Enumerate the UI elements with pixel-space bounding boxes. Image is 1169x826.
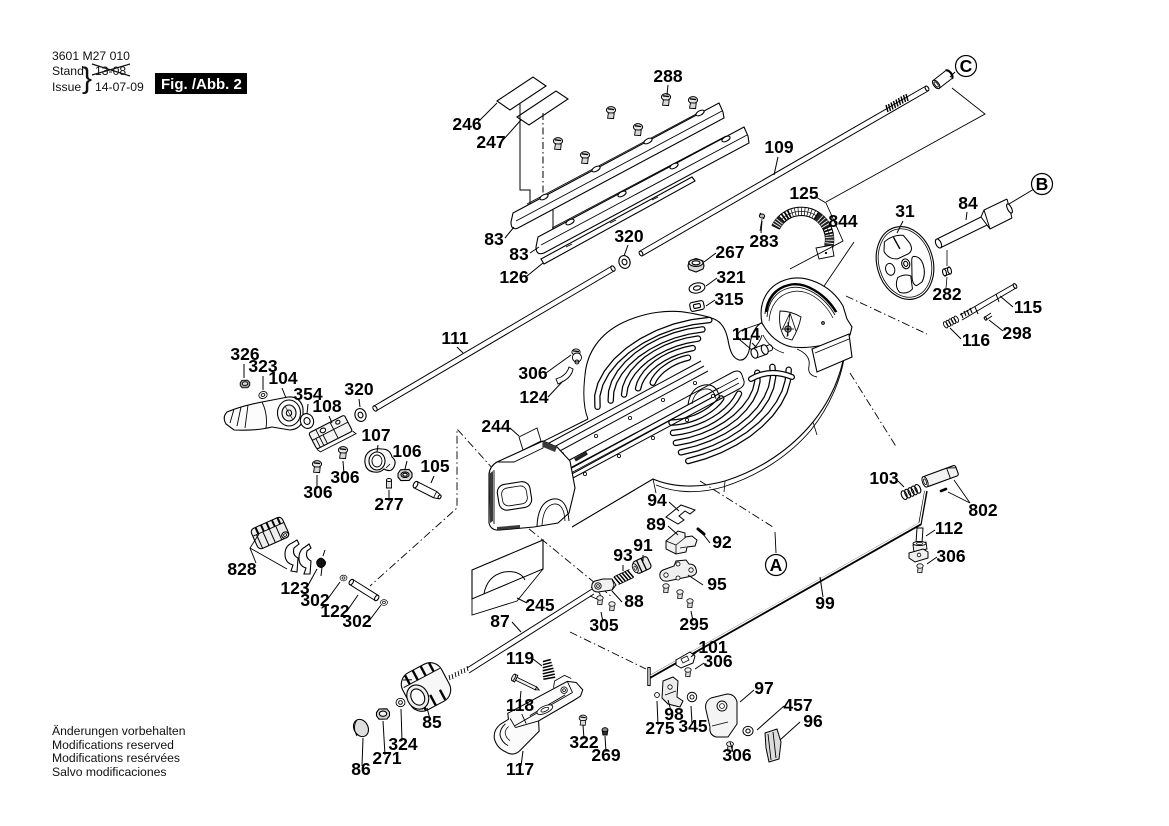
svg-text:B: B (1036, 174, 1049, 194)
svg-text:Änderungen vorbehalten: Änderungen vorbehalten (52, 724, 186, 738)
svg-text:99: 99 (815, 593, 835, 613)
svg-text:315: 315 (714, 289, 743, 309)
svg-text:114: 114 (732, 324, 760, 344)
svg-text:115: 115 (1014, 297, 1042, 317)
svg-text:288: 288 (653, 66, 682, 86)
svg-text:97: 97 (754, 678, 773, 698)
svg-text:Fig. /Abb. 2: Fig. /Abb. 2 (161, 76, 242, 93)
svg-text:116: 116 (962, 330, 990, 350)
svg-text:85: 85 (422, 712, 442, 732)
svg-text:305: 305 (589, 615, 618, 635)
svg-text:245: 245 (525, 595, 554, 615)
svg-text:275: 275 (645, 718, 674, 738)
svg-text:269: 269 (591, 745, 620, 765)
svg-text:802: 802 (968, 500, 997, 520)
svg-text:86: 86 (351, 759, 371, 779)
svg-text:84: 84 (958, 193, 978, 213)
svg-text:271: 271 (372, 748, 401, 768)
svg-text:298: 298 (1002, 323, 1031, 343)
svg-text:112: 112 (935, 518, 963, 538)
svg-text:A: A (770, 555, 783, 575)
svg-text:302: 302 (342, 611, 371, 631)
svg-text:119: 119 (506, 648, 534, 668)
svg-text:828: 828 (227, 559, 256, 579)
svg-text:844: 844 (828, 211, 857, 231)
svg-text:Modifications reserved: Modifications reserved (52, 738, 174, 752)
svg-text:14-07-09: 14-07-09 (95, 80, 144, 94)
svg-text:295: 295 (679, 614, 708, 634)
svg-text:321: 321 (716, 267, 745, 287)
svg-text:92: 92 (712, 532, 732, 552)
svg-text:282: 282 (932, 284, 961, 304)
svg-text:}: } (82, 62, 92, 95)
svg-text:118: 118 (506, 695, 534, 715)
svg-text:306: 306 (330, 467, 359, 487)
svg-text:83: 83 (484, 229, 504, 249)
svg-text:124: 124 (519, 387, 548, 407)
svg-text:Salvo modificaciones: Salvo modificaciones (52, 765, 166, 779)
svg-text:Modifications resérvées: Modifications resérvées (52, 751, 180, 765)
svg-text:C: C (960, 56, 973, 76)
svg-text:247: 247 (476, 132, 505, 152)
svg-text:345: 345 (678, 716, 707, 736)
svg-text:91: 91 (633, 535, 653, 555)
svg-text:31: 31 (895, 201, 915, 221)
svg-text:93: 93 (613, 545, 633, 565)
svg-text:106: 106 (392, 441, 421, 461)
svg-text:87: 87 (490, 611, 509, 631)
svg-text:320: 320 (614, 226, 643, 246)
svg-text:3601 M27 010: 3601 M27 010 (52, 49, 130, 63)
svg-text:267: 267 (715, 242, 744, 262)
svg-text:117: 117 (506, 759, 534, 779)
svg-text:95: 95 (707, 574, 727, 594)
svg-text:306: 306 (303, 482, 332, 502)
svg-text:111: 111 (441, 328, 469, 348)
svg-text:306: 306 (518, 363, 547, 383)
svg-text:246: 246 (452, 114, 481, 134)
svg-text:126: 126 (499, 267, 528, 287)
svg-text:283: 283 (749, 231, 778, 251)
svg-text:244: 244 (481, 416, 510, 436)
svg-text:94: 94 (647, 490, 667, 510)
svg-text:Stand: Stand (52, 64, 84, 78)
svg-text:88: 88 (624, 591, 644, 611)
svg-text:83: 83 (509, 244, 529, 264)
svg-text:109: 109 (764, 137, 793, 157)
svg-text:125: 125 (789, 183, 818, 203)
svg-text:96: 96 (803, 711, 823, 731)
svg-text:306: 306 (722, 745, 751, 765)
svg-text:105: 105 (420, 456, 449, 476)
svg-text:107: 107 (361, 425, 390, 445)
svg-text:306: 306 (936, 546, 965, 566)
svg-text:108: 108 (312, 396, 341, 416)
svg-text:306: 306 (703, 651, 732, 671)
svg-text:103: 103 (869, 468, 898, 488)
svg-text:89: 89 (646, 514, 666, 534)
svg-text:277: 277 (374, 494, 403, 514)
svg-text:320: 320 (344, 379, 373, 399)
svg-text:Issue: Issue (52, 80, 81, 94)
